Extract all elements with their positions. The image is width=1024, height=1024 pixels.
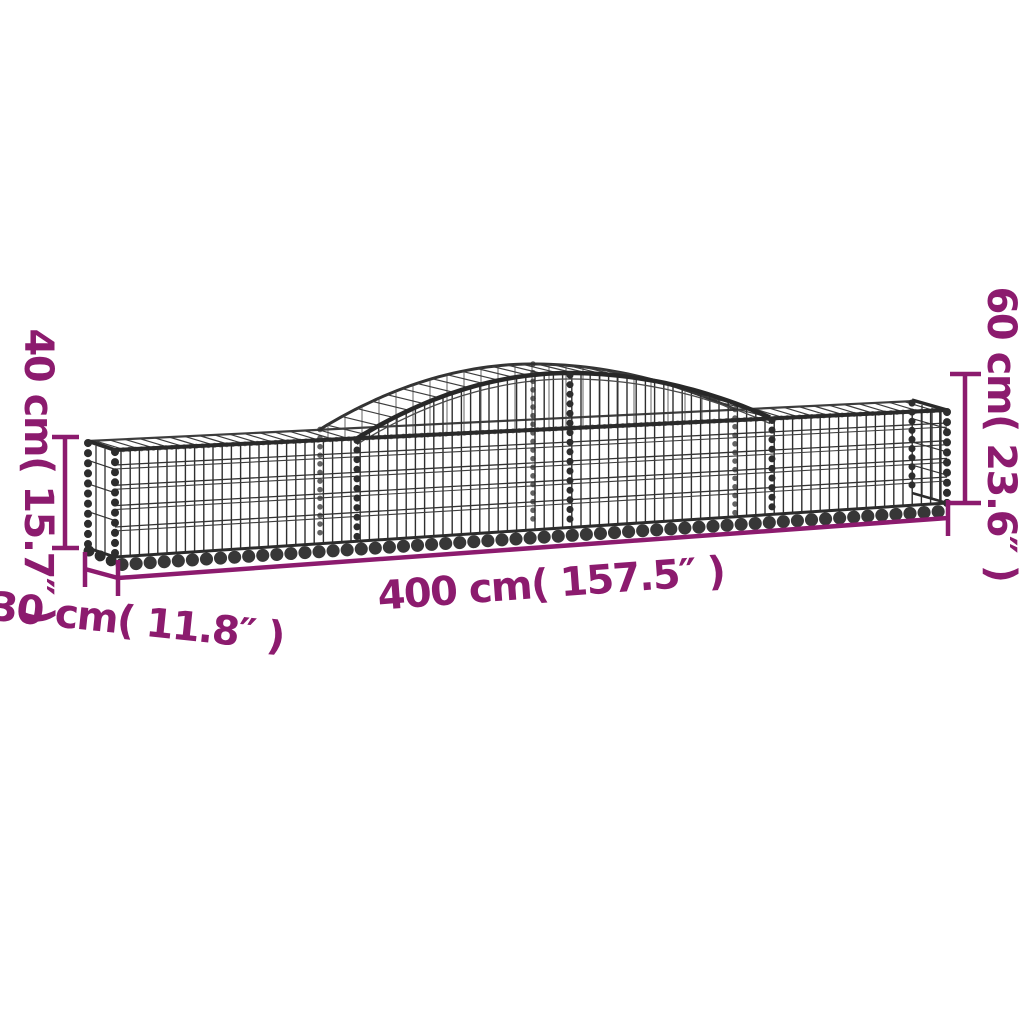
dimension-label-height-left: 40 cm( 15.7″ ) — [15, 329, 61, 624]
dimension-label-height-right: 60 cm( 23.6″ ) — [978, 287, 1024, 582]
dimension-line-height-right — [950, 374, 981, 503]
wire-basket — [88, 364, 947, 565]
gabion-basket-drawing — [0, 0, 1024, 1024]
product-dimension-diagram: 40 cm( 15.7″ ) 60 cm( 23.6″ ) 400 cm( 15… — [0, 0, 1024, 1024]
